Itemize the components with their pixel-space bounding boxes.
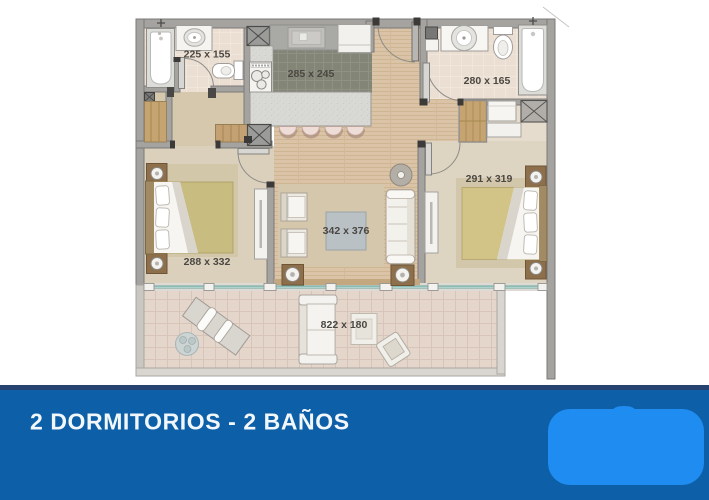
svg-text:285 x 245: 285 x 245: [288, 68, 335, 80]
svg-text:2 DORMITORIOS - 2 BAÑOS: 2 DORMITORIOS - 2 BAÑOS: [30, 408, 350, 435]
svg-text:225 x 155: 225 x 155: [184, 49, 231, 61]
svg-text:288 x 332: 288 x 332: [184, 256, 231, 268]
svg-text:280 x 165: 280 x 165: [464, 75, 511, 87]
svg-text:342 x 376: 342 x 376: [323, 225, 370, 237]
svg-text:822 x 180: 822 x 180: [321, 319, 368, 331]
svg-text:291 x 319: 291 x 319: [466, 173, 513, 185]
